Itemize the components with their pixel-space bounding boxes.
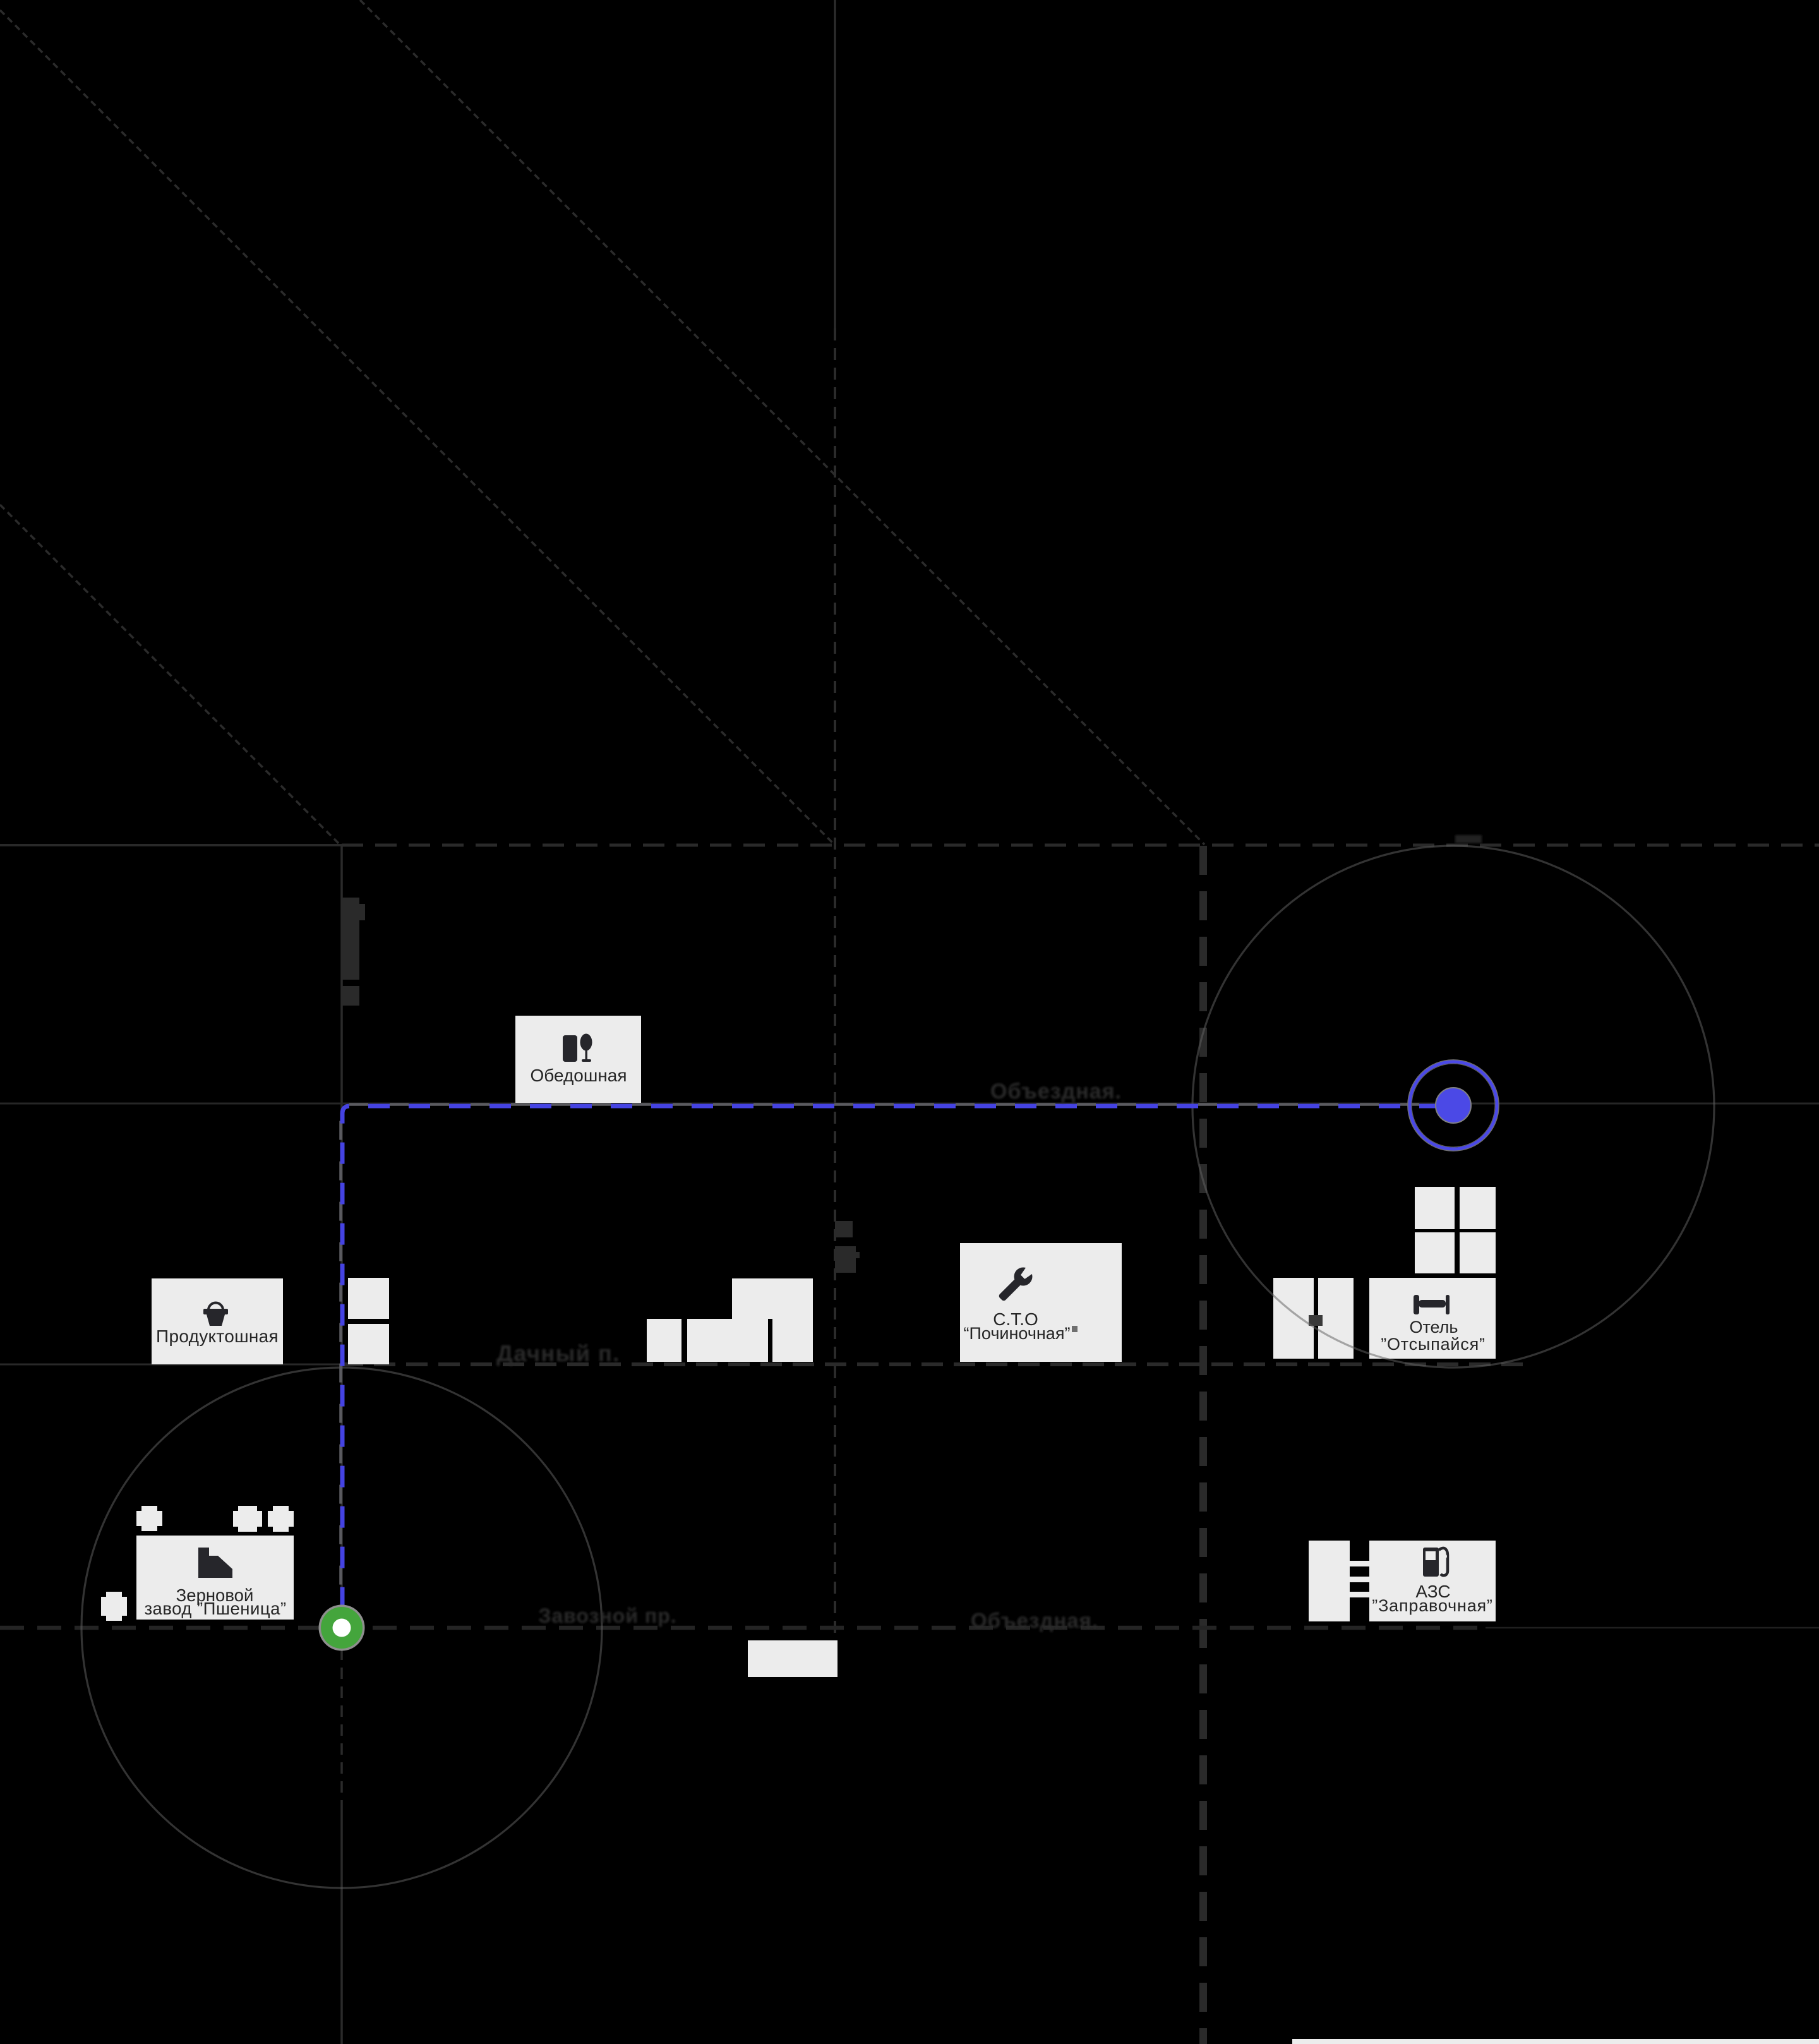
- svg-text:завод ”Пшеница”: завод ”Пшеница”: [144, 1599, 286, 1618]
- svg-text:Продуктошная: Продуктошная: [156, 1326, 279, 1346]
- svg-text:Дачный п.: Дачный п.: [496, 1340, 620, 1366]
- svg-text:”Заправочная”: ”Заправочная”: [1372, 1596, 1492, 1615]
- svg-text:Завозной пр.: Завозной пр.: [538, 1604, 676, 1627]
- svg-text:Отель: Отель: [1409, 1318, 1458, 1337]
- svg-text:”Отсыпайся”: ”Отсыпайся”: [1381, 1335, 1486, 1354]
- svg-text:Обедошная: Обедошная: [530, 1066, 627, 1085]
- svg-text:Объездная.: Объездная.: [990, 1079, 1122, 1103]
- svg-text:Объездная.: Объездная.: [971, 1609, 1098, 1632]
- svg-text:“Починочная”: “Починочная”: [964, 1324, 1071, 1343]
